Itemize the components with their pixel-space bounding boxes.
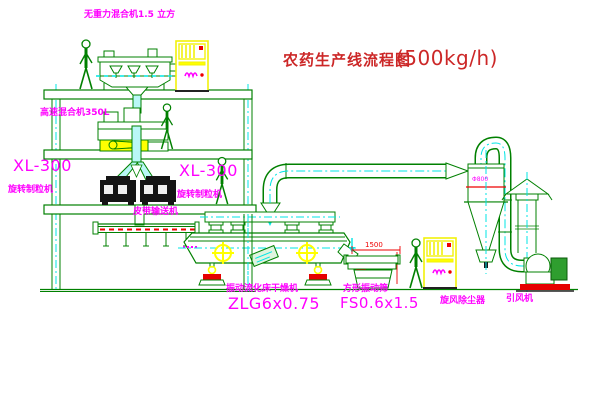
- granulator-left: [100, 176, 136, 205]
- control-cabinet-top: [175, 41, 209, 91]
- process-flow-diagram: 无重力混合机1.5 立方 农药生产线流程图 (500kg/h) 高速混合机350…: [0, 0, 600, 403]
- granulator-left-name-label: 旋转制粒机: [8, 186, 53, 195]
- cyclone-dia-label: Φ800: [472, 177, 488, 183]
- ground-line: [40, 290, 578, 292]
- induced-draft-fan: [516, 254, 574, 291]
- diagram-title: 农药生产线流程图: [283, 53, 411, 68]
- dryer-model-label: ZLG6x0.75: [228, 296, 320, 312]
- vibrating-screen: [344, 246, 400, 288]
- screen-model-label: FS0.6x1.5: [340, 296, 419, 311]
- high-speed-mixer-label: 高速混合机350L: [40, 109, 110, 118]
- granulator-right-model-label: XL-300: [179, 163, 238, 179]
- gravity-mixer-label: 无重力混合机1.5 立方: [84, 11, 175, 20]
- granulator-right-name-label: 旋转制粒机: [177, 191, 222, 200]
- belt-conveyor-label: 皮带输送机: [133, 208, 178, 217]
- control-cabinet-ground: [423, 238, 457, 288]
- screen-dimension-label: 1500: [365, 242, 383, 249]
- fan-name-label: 引风机: [506, 295, 533, 304]
- dryer-name-label: 振动流化床干燥机: [226, 285, 298, 294]
- gravity-mixer: [96, 49, 185, 113]
- worker-figure-ground: [410, 239, 422, 288]
- screen-name-label: 方形振动筛: [343, 285, 388, 294]
- granulator-left-model-label: XL-300: [13, 158, 72, 174]
- worker-figure-roof: [80, 40, 92, 89]
- granulator-right: [140, 176, 176, 205]
- cyclone-name-label: 旋风除尘器: [440, 297, 485, 306]
- fluid-bed-dryer: [178, 212, 358, 285]
- diagram-title-capacity: (500kg/h): [396, 48, 498, 68]
